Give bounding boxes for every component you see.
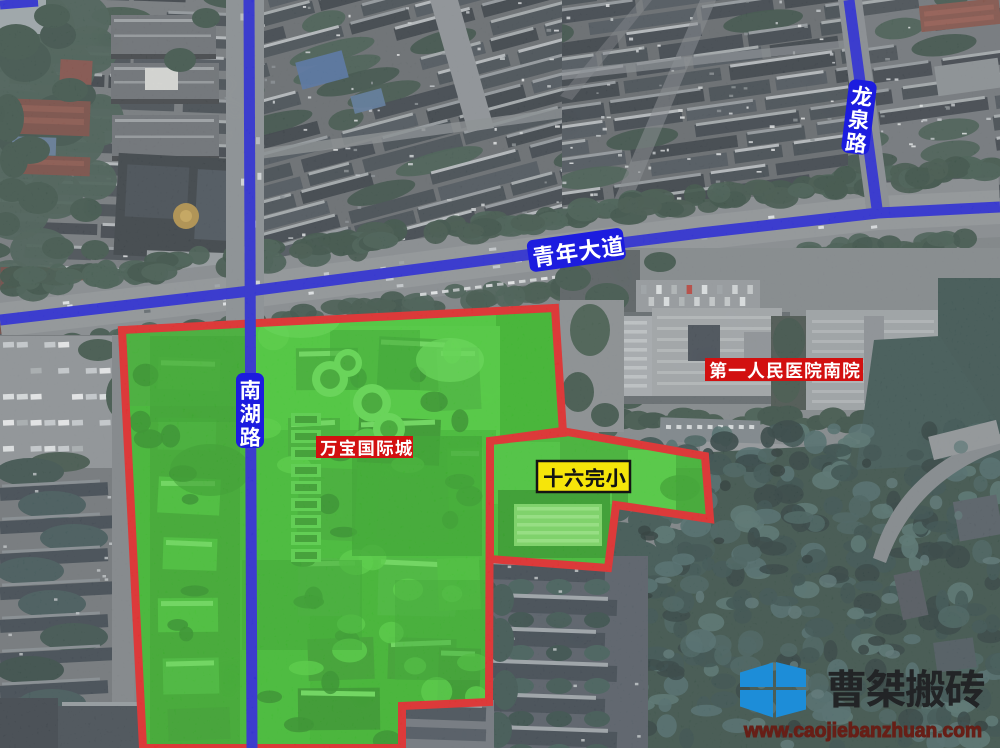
svg-text:www.caojiebanzhuan.com: www.caojiebanzhuan.com — [743, 720, 982, 742]
